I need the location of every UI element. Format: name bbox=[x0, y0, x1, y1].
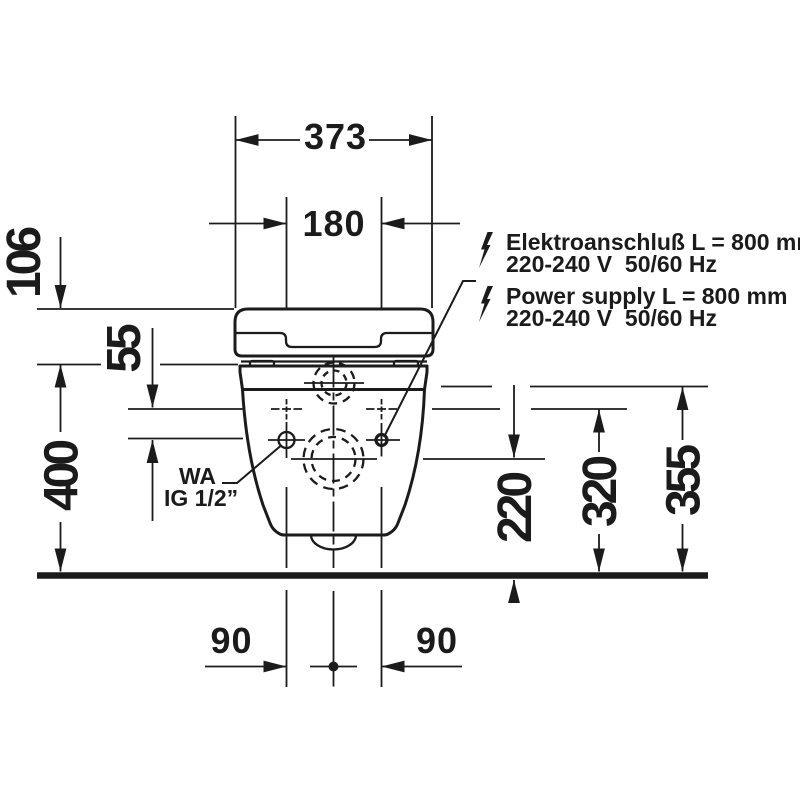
toilet-front-view bbox=[235, 309, 433, 568]
electrical-annotation-en: Power supply L = 800 mm 220-240 V 50/60 … bbox=[479, 283, 787, 331]
electrical-annotation-de: Elektroanschluß L = 800 mm 220-240 V 50/… bbox=[479, 229, 800, 277]
dimension-value-offset-right: 90 bbox=[416, 620, 458, 661]
electrical-en-line2: 220-240 V 50/60 Hz bbox=[506, 305, 717, 331]
lightning-bolt-icon bbox=[479, 232, 493, 268]
power-leader-line bbox=[384, 281, 476, 437]
dimension-value-offset-55: 55 bbox=[98, 324, 151, 373]
fixing-hole-left bbox=[271, 399, 302, 420]
dimension-value-inlet-height: 355 bbox=[658, 445, 711, 516]
lightning-bolt-icon bbox=[479, 286, 493, 322]
fixing-hole-right bbox=[366, 399, 397, 420]
electrical-de-line2: 220-240 V 50/60 Hz bbox=[506, 251, 717, 277]
dimension-value-hole-spacing: 180 bbox=[302, 203, 365, 244]
toilet-installation-drawing: 373 180 106 400 55 220 bbox=[0, 0, 800, 800]
drawing-canvas: 373 180 106 400 55 220 bbox=[0, 0, 800, 800]
dimension-value-fixing-height: 320 bbox=[574, 457, 627, 527]
outlet-hidden-circle bbox=[291, 429, 377, 489]
dimension-value-overall-width: 373 bbox=[304, 116, 367, 157]
seat-lid-step-detail bbox=[236, 333, 432, 347]
dimension-value-lid-height: 106 bbox=[0, 228, 51, 298]
dim-rim-height: 400 bbox=[36, 365, 89, 572]
water-connection: WA IG 1/2” bbox=[164, 422, 305, 511]
center-point-marker bbox=[329, 662, 339, 672]
dimension-value-offset-left: 90 bbox=[210, 620, 252, 661]
dim-outlet-height: 220 bbox=[423, 385, 545, 602]
dimension-value-rim-height: 400 bbox=[36, 441, 89, 511]
dim-hole-spacing: 180 bbox=[209, 197, 460, 308]
dimension-value-outlet-height: 220 bbox=[489, 473, 542, 543]
wa-thread-label: IG 1/2” bbox=[164, 485, 238, 511]
